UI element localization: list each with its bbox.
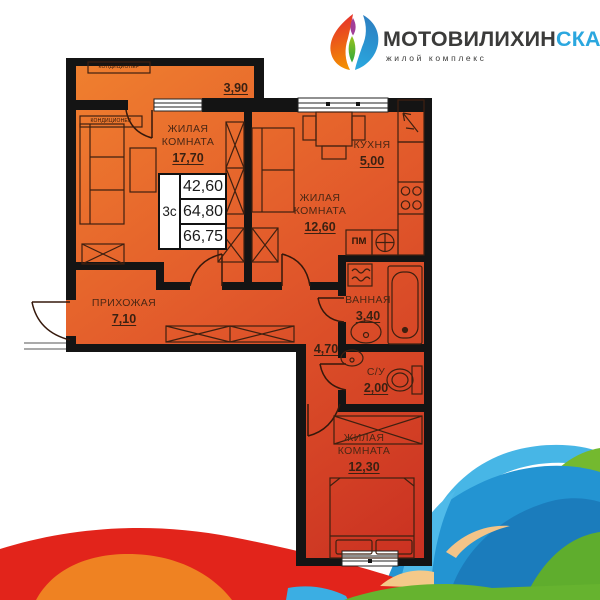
room-label-living-2: ЖИЛАЯ КОМНАТА 12,60	[280, 192, 360, 235]
room-label-kitchen: КУХНЯ 5,00	[342, 139, 402, 169]
area-total-with-balcony: 66,75	[181, 225, 225, 248]
room-label-living-1: ЖИЛАЯ КОМНАТА 17,70	[148, 123, 228, 166]
apartment-info-table: 3с 42,60 64,80 66,75	[158, 173, 227, 250]
room-label-bathroom: ВАННАЯ 3,40	[338, 294, 398, 324]
washing-machine-label: ПМ	[346, 232, 372, 252]
area-total: 64,80	[181, 200, 225, 225]
logo-flame-icon	[330, 14, 378, 70]
room-label-wc: С/У 2,00	[352, 366, 400, 396]
apartment-type: 3с	[160, 175, 181, 248]
logo-brand-accent: СКАЙ	[556, 27, 600, 51]
ac-label-balcony: КОНДИЦИОНЕР	[88, 62, 150, 73]
logo-brand-main: МОТОВИЛИХИН	[383, 27, 556, 51]
room-label-living-3: ЖИЛАЯ КОМНАТА 12,30	[324, 432, 404, 475]
room-label-hallway: ПРИХОЖАЯ 7,10	[84, 297, 164, 327]
logo-tagline: жилой комплекс	[386, 53, 486, 63]
logo-brand: МОТОВИЛИХИНСКАЙ	[383, 27, 600, 52]
area-living: 42,60	[181, 175, 225, 200]
ac-label-room: КОНДИЦИОНЕР	[80, 116, 142, 127]
balcony-area: 3,90	[200, 81, 248, 96]
floor-plan-page: МОТОВИЛИХИНСКАЙ жилой комплекс 3,90 КОНД…	[0, 0, 600, 600]
room-label-balcony: 3,90	[200, 79, 248, 96]
room-label-corridor: 4,70	[306, 340, 346, 357]
